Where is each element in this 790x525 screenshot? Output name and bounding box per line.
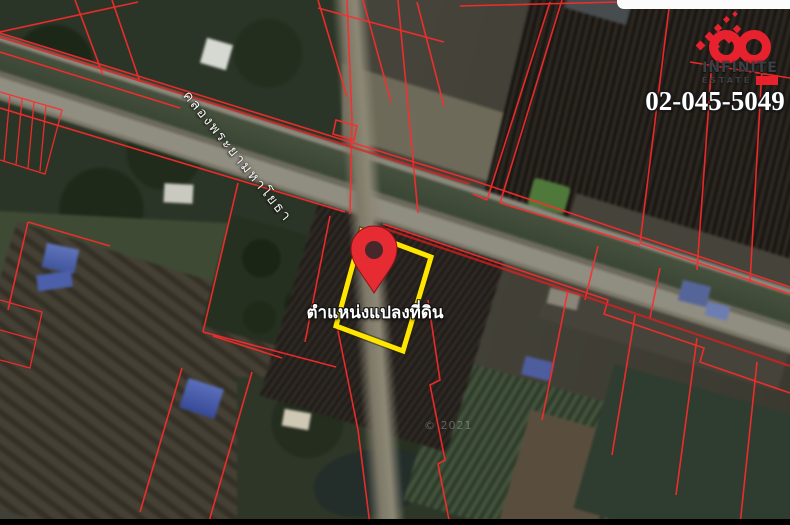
pixel-diamond-icon xyxy=(732,11,738,17)
brand-badge xyxy=(756,76,778,85)
bottom-crop-bar xyxy=(0,519,790,525)
agency-branding: INFINITE ESTATE 02-045-5049 xyxy=(640,8,790,118)
phone-number: 02-045-5049 xyxy=(640,86,790,117)
pixel-diamond-icon xyxy=(723,16,730,23)
land-listing-map[interactable]: คลองพระยามหาโยธา ตำแหน่งแปลงที่ดิน © 202… xyxy=(0,0,790,525)
brand-name: INFINITE xyxy=(695,60,785,76)
plot-position-caption: ตำแหน่งแปลงที่ดิน xyxy=(285,299,465,326)
location-pin-icon[interactable] xyxy=(351,226,397,293)
imagery-copyright: © 2021 xyxy=(424,419,473,432)
brand-subtitle: ESTATE xyxy=(702,76,753,85)
brand-subtitle-row: ESTATE xyxy=(695,76,785,85)
